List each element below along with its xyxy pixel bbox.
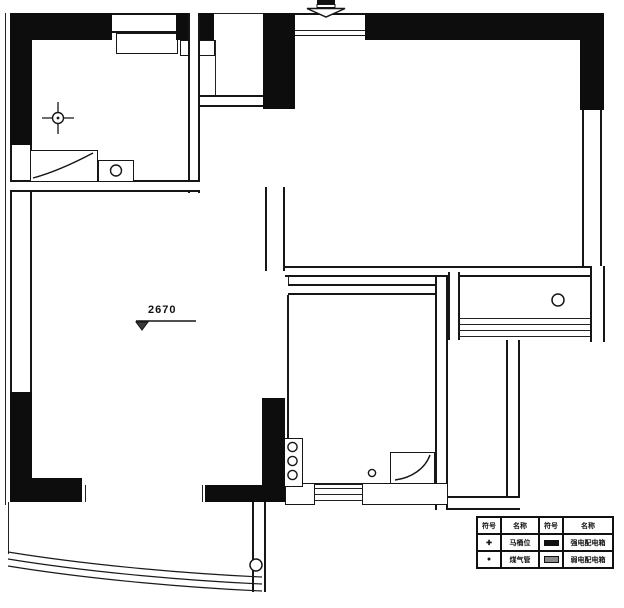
lower-right-bottom-wall bbox=[448, 496, 520, 510]
gas-pipes-icon bbox=[284, 439, 301, 485]
toilet-position-icon bbox=[40, 100, 76, 136]
gas-pipe-box bbox=[283, 438, 303, 487]
floor-drain-box bbox=[98, 160, 134, 182]
wall-top-right bbox=[365, 13, 604, 40]
right-balcony-drain-icon bbox=[550, 292, 566, 308]
shower-tray bbox=[30, 150, 98, 182]
strong-power-box-icon bbox=[544, 540, 559, 546]
outer-wall-line-left bbox=[5, 13, 6, 505]
bigroom-left-pier bbox=[263, 13, 295, 109]
right-balcony-window-line-3 bbox=[458, 330, 592, 331]
window-sill-cabinet bbox=[116, 33, 178, 54]
legend-toilet-name: 马桶位 bbox=[501, 534, 539, 551]
legend-header-name-2: 名称 bbox=[563, 517, 613, 534]
legend-header-name-1: 名称 bbox=[501, 517, 539, 534]
lower-right-wall bbox=[506, 340, 520, 498]
window-top-left bbox=[112, 13, 176, 33]
balcony-bay-window-icon bbox=[4, 540, 266, 600]
right-balcony-window-line-4 bbox=[458, 336, 592, 337]
corner-sink-curve-icon bbox=[391, 453, 433, 482]
bigroom-bottom-wall bbox=[285, 266, 605, 277]
legend-header-symbol-2: 符号 bbox=[539, 517, 563, 534]
kitchen-window-line-1 bbox=[315, 488, 362, 489]
legend-toilet-symbol: ✚ bbox=[477, 534, 501, 551]
weak-power-box-icon bbox=[544, 556, 559, 563]
ceiling-height-label: 2670 bbox=[148, 304, 176, 316]
right-balcony-window-line-2 bbox=[458, 324, 592, 325]
wall-left-upper bbox=[10, 13, 32, 145]
kitchen-top-wall bbox=[288, 284, 446, 295]
level-mark-icon bbox=[134, 318, 200, 332]
hall-bottom-pier-right bbox=[205, 485, 285, 502]
legend-gas-symbol: ● bbox=[477, 551, 501, 568]
entrance-arrow-icon bbox=[302, 0, 350, 18]
legend-strong-power-symbol-cell bbox=[539, 534, 563, 551]
balcony-door-jamb-left bbox=[85, 485, 86, 502]
hall-top-wall bbox=[200, 95, 263, 107]
floor-drain-circle-icon bbox=[99, 161, 132, 180]
wall-right-upper bbox=[580, 13, 604, 110]
kitchen-bottom-pier-right bbox=[362, 483, 448, 505]
legend-strong-power-name: 强电配电箱 bbox=[563, 534, 613, 551]
hall-bottom-pier-left bbox=[10, 478, 82, 502]
kitchen-window-line-2 bbox=[315, 494, 362, 495]
window-bigroom-top-inner-line bbox=[295, 30, 365, 31]
balcony-drain-icon bbox=[248, 557, 264, 573]
balcony-door-jamb-right bbox=[202, 485, 203, 502]
legend-table: 符号 名称 符号 名称 ✚ 马桶位 强电配电箱 ● 煤气管 弱电配电箱 bbox=[476, 516, 614, 569]
gas-valve-dot-icon bbox=[366, 467, 378, 479]
window-band-right bbox=[582, 110, 602, 266]
wall-left-lower bbox=[10, 392, 32, 488]
shower-tray-curve-icon bbox=[31, 151, 96, 180]
kitchen-right-wall bbox=[435, 277, 448, 510]
entry-strip-line bbox=[215, 40, 216, 95]
kitchen-window-line-3 bbox=[315, 500, 362, 501]
right-balcony-window-line-1 bbox=[458, 318, 592, 319]
legend-weak-power-name: 弱电配电箱 bbox=[563, 551, 613, 568]
corner-sink bbox=[390, 452, 435, 484]
kitchen-left-wall bbox=[287, 295, 289, 440]
legend-gas-name: 煤气管 bbox=[501, 551, 539, 568]
legend-header-symbol-1: 符号 bbox=[477, 517, 501, 534]
legend-weak-power-symbol-cell bbox=[539, 551, 563, 568]
bathroom-right-wall bbox=[188, 13, 200, 193]
hall-bigroom-partition bbox=[265, 187, 285, 271]
wall-right-lower bbox=[590, 266, 605, 342]
kitchen-step-line bbox=[288, 277, 289, 284]
entry-opening-top-line bbox=[214, 13, 263, 14]
floor-plan-canvas: 2670 符号 名称 符号 名称 ✚ 马桶位 强电配电箱 ● 煤气管 弱电配电箱 bbox=[0, 0, 624, 608]
